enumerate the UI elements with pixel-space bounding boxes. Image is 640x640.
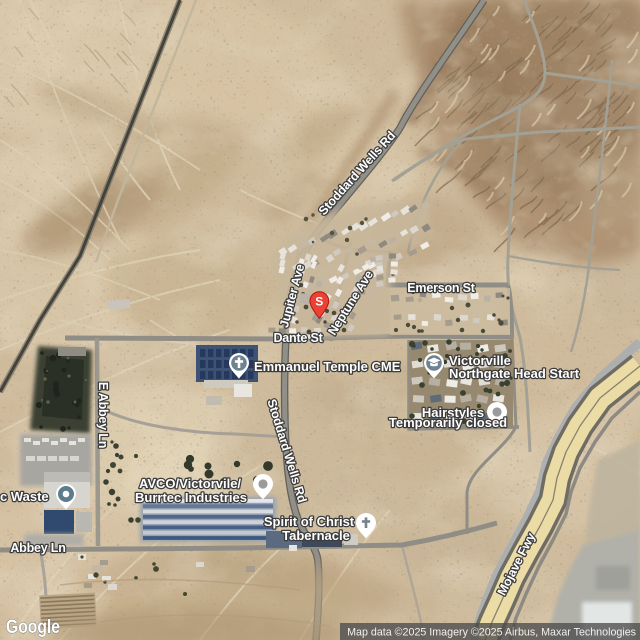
svg-text:Temporarily closed: Temporarily closed [389,415,507,430]
svg-text:Emmanuel Temple CME: Emmanuel Temple CME [254,359,401,374]
svg-text:S: S [315,295,323,309]
svg-text:Tabernacle: Tabernacle [282,528,350,543]
svg-text:Abbey Ln: Abbey Ln [10,541,65,555]
svg-text:Northgate Head Start: Northgate Head Start [449,366,580,381]
svg-text:Google: Google [6,617,60,638]
svg-text:c Waste: c Waste [0,489,49,504]
svg-text:AVCO/Victorvile/: AVCO/Victorvile/ [139,476,241,491]
svg-text:E Abbey Ln: E Abbey Ln [96,382,110,448]
svg-text:Map data ©2025 Imagery ©2025 A: Map data ©2025 Imagery ©2025 Airbus, Max… [347,627,636,639]
svg-text:Spirit of Christ: Spirit of Christ [264,514,355,529]
svg-text:Dante St: Dante St [273,331,323,345]
svg-text:Burrtec Industries: Burrtec Industries [135,490,247,505]
svg-text:Emerson St: Emerson St [407,281,476,295]
